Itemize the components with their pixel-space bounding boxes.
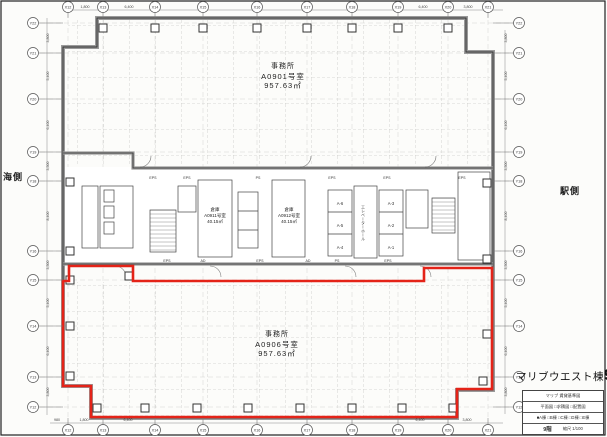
- service-label: EPS: [256, 259, 264, 263]
- grid-bubble-label: Y14: [30, 324, 37, 328]
- service-label: EPS: [183, 176, 191, 180]
- grid-bubble-label: X21: [485, 428, 492, 432]
- storage-room-a0911: [198, 180, 232, 257]
- dim-label: 5,400: [504, 299, 508, 308]
- dim-label: 3,800: [464, 5, 473, 9]
- dim-label: 8,400: [504, 212, 508, 221]
- column: [93, 404, 101, 412]
- column: [348, 404, 356, 412]
- service-room: [406, 190, 428, 228]
- grid-bubble-label: Y20: [30, 97, 37, 101]
- service-label: PS: [256, 176, 261, 180]
- service-label: AD: [306, 259, 311, 263]
- column: [193, 404, 201, 412]
- grid-bubble-label: X15: [200, 5, 207, 9]
- service-label: AD: [201, 259, 206, 263]
- dim-label: 3,800: [46, 388, 50, 397]
- column: [348, 24, 356, 32]
- dim-label: 6,400: [124, 418, 133, 422]
- elevator-label: A-6: [337, 201, 344, 206]
- grid-bubble-label: Y16: [516, 249, 523, 253]
- dim-label: 5,400: [46, 299, 50, 308]
- vestibule: [178, 186, 196, 212]
- grid-bubble-label: X12: [65, 5, 72, 9]
- shaft-group: [238, 192, 258, 248]
- dim-label: 3,800: [46, 34, 50, 43]
- service-label: EPS: [149, 176, 157, 180]
- dim-label: 8,400: [46, 212, 50, 221]
- grid-bubble-label: Y19: [30, 150, 37, 154]
- title-block-row2: 平面図 □求積図 □配置図: [523, 402, 603, 413]
- dim-label: 6,400: [125, 5, 134, 9]
- elevator-label: A-1: [388, 245, 395, 250]
- service-label: EPS: [458, 176, 466, 180]
- grid-bubble-label: Y20: [516, 97, 523, 101]
- title-block-row1: マリブ 賃貸基準図: [523, 391, 603, 402]
- column: [479, 377, 487, 385]
- elevator-label: A-5: [337, 223, 344, 228]
- column: [66, 322, 74, 330]
- dim-label: 3,500: [504, 261, 508, 270]
- grid-bubble-label: X12: [65, 428, 72, 432]
- floorplan-sheet: X12X12X13X13X14X14X15X15X16X16X17X17X18X…: [0, 0, 607, 437]
- grid-bubble-label: Y15: [30, 278, 37, 282]
- column: [141, 404, 149, 412]
- grid-bubble-label: X17: [304, 428, 311, 432]
- stair-east: [432, 198, 455, 233]
- storage-room-a0912: [272, 180, 305, 257]
- dim-label: 3,800: [504, 388, 508, 397]
- service-label: PS: [335, 259, 340, 263]
- grid-bubble-label: Y13: [30, 375, 37, 379]
- dim-label: 6,400: [504, 347, 508, 356]
- title-block: マリブ 賃貸基準図 平面図 □求積図 □配置図 ■A棟 □B棟 □C棟 □D棟 …: [522, 390, 604, 435]
- grid-bubble-label: X19: [395, 428, 402, 432]
- elevator-label: A-2: [388, 223, 395, 228]
- grid-bubble-label: X17: [304, 5, 311, 9]
- service-room: [82, 186, 98, 248]
- floorplan-drawing: X12X12X13X13X14X14X15X15X16X16X17X17X18X…: [0, 0, 607, 437]
- grid-bubble-label: X20: [445, 5, 452, 9]
- column: [296, 404, 304, 412]
- grid-bubble-label: Y15: [516, 278, 523, 282]
- column: [483, 179, 491, 187]
- service-label: EPS: [384, 259, 392, 263]
- dim-label: 5,400: [46, 72, 50, 81]
- title-block-row3: ■A棟 □B棟 □C棟 □D棟 □E棟: [523, 413, 603, 424]
- grid-bubble-label: X14: [152, 5, 159, 9]
- elevator-hall: [354, 186, 377, 258]
- grid-bubble-label: Y16: [30, 249, 37, 253]
- dim-label: 6,400: [46, 347, 50, 356]
- service-label: EPS: [163, 259, 171, 263]
- column: [66, 247, 74, 255]
- dim-label: 6,400: [416, 418, 425, 422]
- grid-bubble-label: Y22: [516, 21, 523, 25]
- column: [66, 372, 74, 380]
- grid-bubble-label: Y18: [516, 179, 523, 183]
- dim-label: 3,500: [504, 162, 508, 171]
- dim-label: 1,800: [80, 418, 89, 422]
- grid-bubble-label: Y13: [516, 375, 523, 379]
- column: [394, 24, 402, 32]
- column: [483, 330, 491, 338]
- dim-label: 3,800: [504, 34, 508, 43]
- elevator-label: A-4: [337, 245, 344, 250]
- dim-label: 6,400: [504, 121, 508, 130]
- elevator-label: A-3: [388, 201, 395, 206]
- stair-west: [150, 210, 176, 252]
- grid-bubble-label: X14: [152, 428, 159, 432]
- column: [303, 24, 311, 32]
- grid-bubble-label: X13: [100, 5, 107, 9]
- column: [199, 24, 207, 32]
- service-label: EPS: [328, 176, 336, 180]
- column: [151, 24, 159, 32]
- grid-bubble-label: X13: [100, 428, 107, 432]
- grid-bubble-label: X18: [349, 428, 356, 432]
- grid-bubble-label: X20: [445, 428, 452, 432]
- column: [99, 24, 107, 32]
- dim-label: 6,400: [46, 121, 50, 130]
- grid-bubble-label: X21: [485, 5, 492, 9]
- column: [253, 24, 261, 32]
- column: [244, 404, 252, 412]
- dim-label: 6,400: [419, 5, 428, 9]
- column: [444, 24, 452, 32]
- title-block-floor: 9階: [543, 425, 552, 433]
- dim-label: 3,500: [46, 162, 50, 171]
- column: [66, 178, 74, 186]
- grid-bubble-label: Y21: [30, 51, 37, 55]
- grid-bubble-label: Y14: [516, 324, 523, 328]
- dim-label: 3,800: [463, 418, 472, 422]
- grid-bubble-label: Y19: [516, 150, 523, 154]
- grid-bubble-label: Y22: [30, 21, 37, 25]
- grid-bubble-label: Y21: [516, 51, 523, 55]
- dim-label: 5,400: [504, 72, 508, 81]
- title-block-scale: 縮尺 1/100: [563, 426, 583, 432]
- column: [483, 255, 491, 263]
- column: [398, 404, 406, 412]
- service-label: EPS: [383, 176, 391, 180]
- title-block-row4: 9階 縮尺 1/100: [523, 424, 603, 434]
- dim-label: 3,500: [46, 261, 50, 270]
- grid-bubble-label: X19: [395, 5, 402, 9]
- grid-bubble-label: X16: [254, 428, 261, 432]
- dim-label: 980: [54, 418, 60, 422]
- grid-bubble-label: X15: [200, 428, 207, 432]
- grid-bubble-label: X16: [254, 5, 261, 9]
- grid-bubble-label: Y18: [30, 179, 37, 183]
- grid-bubble-label: X18: [349, 5, 356, 9]
- dim-label: 1,800: [81, 5, 90, 9]
- grid-bubble-label: Y12: [30, 405, 37, 409]
